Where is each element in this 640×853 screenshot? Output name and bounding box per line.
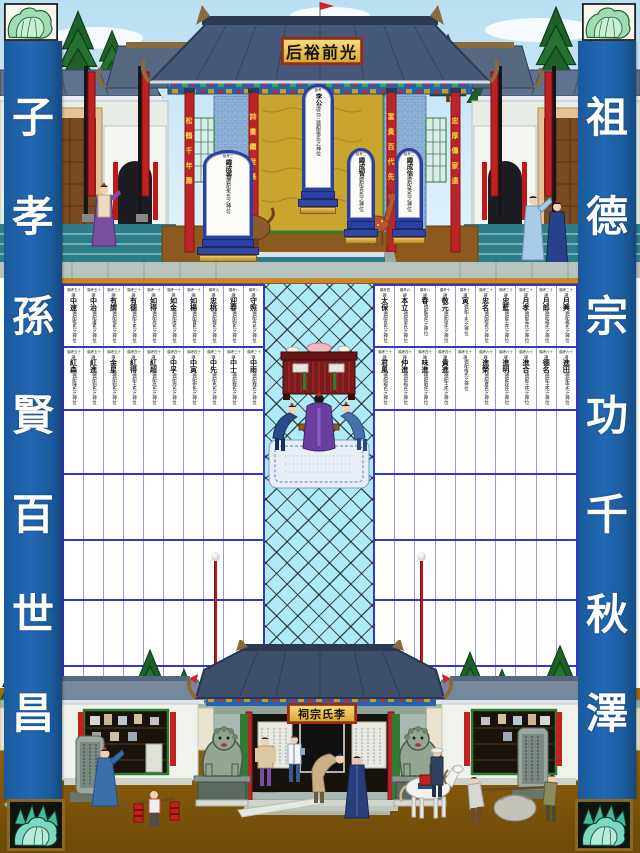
memorial-tablet-cell (224, 411, 244, 473)
memorial-tablet-cell (557, 541, 576, 599)
memorial-tablet-cell (124, 475, 144, 539)
memorial-tablet-cell: 顯考四十諱紅得德配王氏之神位 (124, 348, 144, 409)
memorial-tablet-cell: 顯考四十諱中孚德配周氏之神位 (164, 348, 184, 409)
banner-character: 千 (586, 494, 628, 536)
pillar-couplet: 忠厚傳家遠 (451, 106, 460, 202)
memorial-tablet-cell: 顯考五十諱金星德配劉氏之神位 (104, 348, 124, 409)
cabbage-icon (582, 3, 636, 41)
memorial-tablet-cell: 顯考一十諱如金德配唐氏之神位 (164, 286, 184, 346)
memorial-tablet-cell (84, 541, 104, 599)
memorial-tablet-cell: 顯考二十諱月孝德配朱氏之神位 (516, 286, 536, 346)
memorial-tablet-cell: 顯考三十諱君風德配楊氏之神位 (375, 348, 395, 409)
corner-ornament-top-right (582, 3, 636, 41)
tablet-row (64, 411, 263, 475)
memorial-tablet-cell (244, 541, 263, 599)
memorial-tablet-cell: 顯考四十諱味進德配劉氏之神位 (415, 348, 435, 409)
memorial-tablet-cell: 顯考三十諱有謂德配鄧氏之神位 (104, 286, 124, 346)
ancestral-hall-poster: 后裕前光 松鶴千年壽 詩書繼世長 富貴百代先 忠厚傳家遠 祖考三諱成善德配朱氏之… (0, 0, 640, 853)
top-hall-plaque: 后裕前光 (281, 37, 363, 65)
memorial-tablet-cell: 顯考九諱忠桃德配魏氏之神位 (204, 286, 224, 346)
memorial-tablet-cell (557, 411, 576, 473)
memorial-tablet-cell: 顯考四十諱仲進德配梅氏之神位 (395, 348, 415, 409)
memorial-tablet-cell (537, 475, 557, 539)
memorial-tablet-cell (64, 475, 84, 539)
memorial-tablet-cell: 顯考一十諱如楊德配賈氏之神位 (184, 286, 204, 346)
right-banner: 祖德宗功千秋澤 (578, 41, 636, 799)
memorial-tablet-cell (164, 411, 184, 473)
banner-character: 宗 (586, 296, 628, 338)
memorial-tablet-cell: 顯考十諱寅德配丁氏之神位 (456, 286, 476, 346)
memorial-tablet-cell: 顯考六十諱進榮德配夏氏之神位 (476, 348, 496, 409)
pole-finial (417, 552, 426, 561)
memorial-tablet-cell (476, 411, 496, 473)
tablet-row (375, 475, 576, 541)
tablet-row (375, 411, 576, 475)
memorial-tablet-cell: 顯考五十諱中治德配盧氏之神位 (84, 286, 104, 346)
memorial-tablet-cell (496, 541, 516, 599)
memorial-tablet-cell: 顯考一十諱如得德配周氏之神位 (144, 286, 164, 346)
memorial-tablet-cell (496, 475, 516, 539)
memorial-tablet-cell (124, 541, 144, 599)
memorial-tablet-cell: 顯考三十諱有德德配王氏之神位 (124, 286, 144, 346)
pole-finial (211, 552, 220, 561)
memorial-tablet-cell: 顯考二十諱月郎德配楊氏之神位 (537, 286, 557, 346)
memorial-tablet-cell (244, 475, 263, 539)
memorial-tablet-cell: 顯考十諱敬元德配梁氏之神位 (436, 286, 456, 346)
memorial-tablet-cell (436, 475, 456, 539)
memorial-tablet-cell: 顯考三十諱中先德配馬氏之神位 (204, 348, 224, 409)
banner-character: 賢 (12, 395, 54, 437)
memorial-tablet-cell (375, 475, 395, 539)
memorial-tablet-cell (184, 411, 204, 473)
memorial-tablet-cell (164, 541, 184, 599)
memorial-tablet-cell (415, 475, 435, 539)
memorial-tablet-cell (516, 475, 536, 539)
memorial-tablet-cell (64, 411, 84, 473)
memorial-tablet-cell: 顯考六十諱德名德配王氏之神位 (537, 348, 557, 409)
memorial-tablet-cell: 顯考六十諱進合德配王氏之神位 (516, 348, 536, 409)
ancestor-worship-scene (265, 336, 373, 496)
memorial-tablet-cell (144, 541, 164, 599)
banner-character: 功 (586, 395, 628, 437)
memorial-tablet-cell (456, 541, 476, 599)
memorial-tablet-cell: 顯考二十諱忠藍德配王氏之神位 (496, 286, 516, 346)
memorial-tablet-cell (415, 411, 435, 473)
left-side-gate (42, 676, 208, 785)
memorial-tablet-cell (557, 475, 576, 539)
tablet-row: 顯考三十諱君風德配楊氏之神位顯考四十諱仲進德配梅氏之神位顯考四十諱味進德配劉氏之… (375, 348, 576, 411)
memorial-tablet-cell (476, 475, 496, 539)
memorial-tablet-cell: 顯考五十諱德配梅氏之神位 (456, 348, 476, 409)
corner-ornament-bottom-right (575, 799, 633, 851)
memorial-tablet-cell: 顯考四十諱中寅德配伊氏之神位 (184, 348, 204, 409)
memorial-tablet-cell: 顯考四十諱紅超德配高氏之神位 (144, 348, 164, 409)
tablet-row: 顯考四諱太保德配袁氏之神位顯考六諱本立德配梁氏之神位顯考八諱春德配張氏之神位顯考… (375, 286, 576, 348)
memorial-tablet-cell (104, 475, 124, 539)
memorial-tablet-cell (204, 475, 224, 539)
bottom-hall-plaque: 祠宗氏李 (287, 703, 357, 724)
memorial-tablet-cell (164, 475, 184, 539)
memorial-tablet-cell (144, 411, 164, 473)
memorial-tablet-cell (244, 411, 263, 473)
memorial-tablet-cell: 顯考四諱太保德配袁氏之神位 (375, 286, 395, 346)
memorial-tablet-cell (516, 541, 536, 599)
courtyard-floor (0, 262, 640, 278)
tablet-block-right: 顯考四諱太保德配袁氏之神位顯考六諱本立德配梁氏之神位顯考八諱春德配張氏之神位顯考… (373, 284, 578, 690)
memorial-tablet-cell (144, 475, 164, 539)
memorial-tablet-cell (224, 475, 244, 539)
kneeling-worshipper (303, 393, 335, 452)
tablet-row: 顯考五十諱紅森德配陳氏之神位顯考五十諱紅進德配劉氏之神位顯考五十諱金星德配劉氏之… (64, 348, 263, 411)
memorial-tablet-cell (124, 411, 144, 473)
memorial-tablet-cell: 顯考三十諱中雨德配魏氏之神位 (244, 348, 263, 409)
ancestor-spirit-tablet: 祖考三諱成善德配朱氏之神位 (197, 150, 259, 262)
memorial-tablet-cell: 顯考二十諱月興德配楊氏之神位 (557, 286, 576, 346)
memorial-tablet-cell (436, 411, 456, 473)
memorial-tablet-cell (184, 541, 204, 599)
memorial-tablet-cell: 顯考二十諱忠名德配張氏之神位 (476, 286, 496, 346)
pillar-couplet: 松鶴千年壽 (185, 106, 194, 202)
memorial-tablet-cell (224, 541, 244, 599)
banner-character: 德 (586, 196, 628, 238)
banner-character: 子 (12, 97, 54, 139)
ancestor-spirit-tablet: 祖考二諱成智德配袁氏之神位 (344, 148, 378, 244)
memorial-tablet-cell: 顯考六諱本立德配梁氏之神位 (395, 286, 415, 346)
memorial-tablet-cell: 顯考五十諱中速德配張氏之神位 (64, 286, 84, 346)
memorial-tablet-cell (436, 541, 456, 599)
memorial-tablet-cell: 顯考八諱春德配張氏之神位 (415, 286, 435, 346)
banner-character: 百 (12, 494, 54, 536)
cabbage-icon (575, 799, 633, 851)
memorial-tablet-cell (104, 411, 124, 473)
memorial-tablet-cell: 顯考八諱迎春德配劉氏之神位 (224, 286, 244, 346)
memorial-tablet-cell (456, 411, 476, 473)
tablet-row (64, 475, 263, 541)
bottom-temple-scene (0, 640, 640, 853)
memorial-tablet-cell (496, 411, 516, 473)
memorial-tablet-cell (64, 541, 84, 599)
memorial-tablet-cell (537, 541, 557, 599)
central-walkway (265, 284, 373, 690)
memorial-tablet-cell: 顯考四十諱貴進德配王氏之神位 (436, 348, 456, 409)
memorial-tablet-cell: 顯考八諱守照德配冉氏之神位 (244, 286, 263, 346)
tablet-row (64, 541, 263, 601)
banner-character: 秋 (586, 594, 628, 636)
memorial-tablet-cell (104, 541, 124, 599)
memorial-tablet-cell (537, 411, 557, 473)
banner-character: 昌 (12, 693, 54, 735)
memorial-tablet-cell (375, 541, 395, 599)
tablet-row (375, 541, 576, 601)
memorial-tablet-cell (395, 541, 415, 599)
memorial-tablet-cell: 顯考三十諱中士德配魏氏之神位 (224, 348, 244, 409)
memorial-tablet-cell: 顯考六十諱進明德配段氏之神位 (496, 348, 516, 409)
cabbage-icon (4, 3, 58, 41)
tablet-block-left: 顯考五十諱中速德配張氏之神位顯考五十諱中治德配盧氏之神位顯考三十諱有謂德配鄧氏之… (62, 284, 265, 690)
banner-character: 祖 (586, 97, 628, 139)
memorial-tablet-cell (476, 541, 496, 599)
left-banner: 子孝孫賢百世昌 (4, 41, 62, 799)
lattice-window (426, 118, 446, 182)
memorial-tablet-cell (84, 475, 104, 539)
cabbage-icon (7, 799, 65, 851)
memorial-tablet-cell: 顯考六十諱進田德配申氏之神位 (557, 348, 576, 409)
memorial-tablet-cell (375, 411, 395, 473)
memorial-tablet-cell (204, 411, 224, 473)
memorial-tablet-cell: 顯考五十諱紅森德配陳氏之神位 (64, 348, 84, 409)
tablet-row: 顯考五十諱中速德配張氏之神位顯考五十諱中治德配盧氏之神位顯考三十諱有謂德配鄧氏之… (64, 286, 263, 348)
memorial-tablet-cell (456, 475, 476, 539)
altar-table (281, 343, 357, 400)
memorial-tablet-cell (84, 411, 104, 473)
ancestor-spirit-tablet: 祖考李公諱元三德配張氏之神位 (298, 84, 338, 214)
memorial-tablet-cell: 顯考五十諱紅進德配劉氏之神位 (84, 348, 104, 409)
memorial-tablet-grid: 顯考五十諱中速德配張氏之神位顯考五十諱中治德配盧氏之神位顯考三十諱有謂德配鄧氏之… (62, 278, 578, 690)
memorial-tablet-cell (395, 475, 415, 539)
corner-ornament-bottom-left (7, 799, 65, 851)
memorial-tablet-cell (184, 475, 204, 539)
ancestor-spirit-tablet: 祖考二諱成信德配吳氏之神位 (392, 148, 426, 244)
banner-character: 孫 (12, 296, 54, 338)
banner-character: 孝 (12, 196, 54, 238)
banner-character: 澤 (586, 693, 628, 735)
corner-ornament-top-left (4, 3, 58, 41)
banner-character: 世 (12, 594, 54, 636)
memorial-tablet-cell (516, 411, 536, 473)
memorial-tablet-cell (395, 411, 415, 473)
